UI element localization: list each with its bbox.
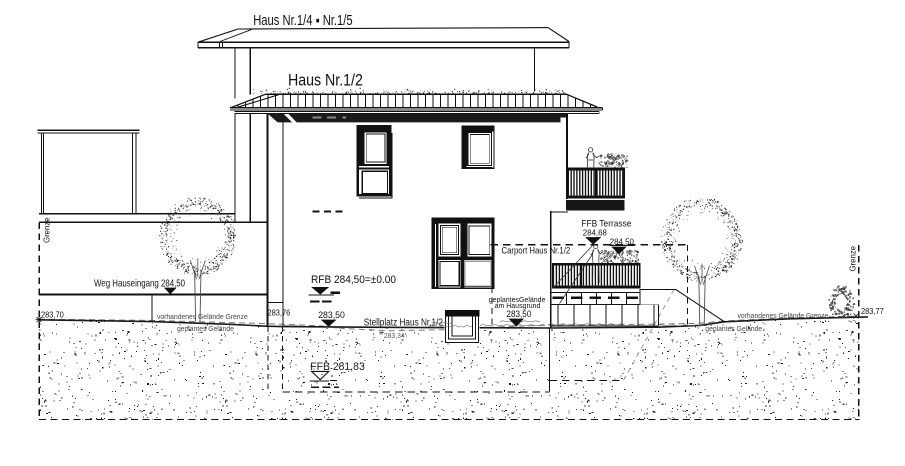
svg-text:geplantes Gelände: geplantes Gelände <box>177 326 234 333</box>
svg-text:283,50: 283,50 <box>506 309 531 319</box>
svg-text:283,34: 283,34 <box>384 333 405 340</box>
svg-text:283,76: 283,76 <box>268 308 291 317</box>
svg-text:283,70: 283,70 <box>41 310 64 319</box>
svg-text:Weg Hauseingang 284,50: Weg Hauseingang 284,50 <box>94 278 185 289</box>
svg-text:vorhandenes Gelände Grenze: vorhandenes Gelände Grenze <box>157 314 248 321</box>
svg-text:284,68: 284,68 <box>583 228 608 237</box>
svg-text:Carport Haus Nr.1/2: Carport Haus Nr.1/2 <box>502 246 571 256</box>
svg-text:Grenze: Grenze <box>848 245 857 271</box>
svg-text:RFB 284,50=±0.00: RFB 284,50=±0.00 <box>311 273 396 286</box>
svg-text:geplantes Gelände: geplantes Gelände <box>705 326 762 333</box>
svg-text:vorhandenes Gelände Grenze: vorhandenes Gelände Grenze <box>738 313 829 320</box>
svg-text:283,77: 283,77 <box>861 307 884 316</box>
svg-text:Haus Nr.1/4 ▪ Nr.1/5: Haus Nr.1/4 ▪ Nr.1/5 <box>253 12 352 29</box>
svg-text:Stellplatz Haus Nr,1/2: Stellplatz Haus Nr,1/2 <box>364 317 443 328</box>
svg-text:283,50: 283,50 <box>318 310 345 320</box>
svg-text:Grenze: Grenze <box>42 217 51 243</box>
svg-text:FFB Terrasse: FFB Terrasse <box>581 218 631 228</box>
svg-text:Haus Nr.1/2: Haus Nr.1/2 <box>288 71 363 89</box>
